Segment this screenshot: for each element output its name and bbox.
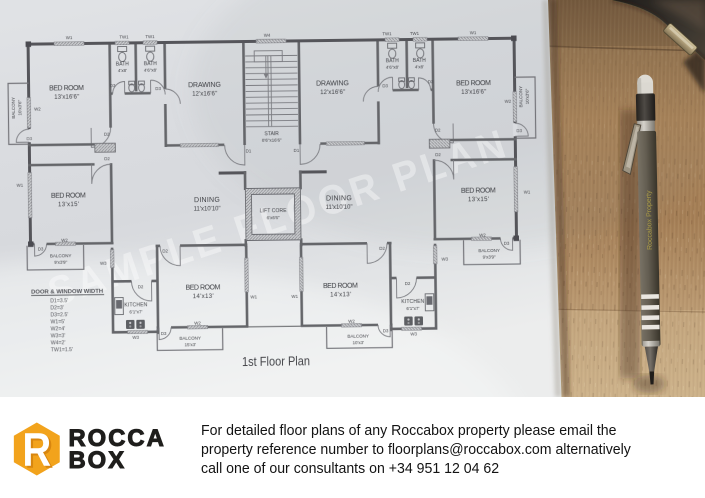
svg-text:D3: D3 <box>110 83 116 88</box>
svg-text:W2=4': W2=4' <box>51 326 66 332</box>
svg-text:D2=3': D2=3' <box>50 305 64 311</box>
svg-text:W2: W2 <box>479 233 486 238</box>
svg-text:BATH: BATH <box>144 61 157 67</box>
svg-text:6'1"x7': 6'1"x7' <box>129 309 142 314</box>
svg-text:W1: W1 <box>250 294 257 299</box>
svg-text:BED ROOM: BED ROOM <box>323 283 358 290</box>
svg-text:13'x16'6": 13'x16'6" <box>461 90 486 96</box>
svg-text:D3: D3 <box>26 136 32 141</box>
svg-text:W4=2': W4=2' <box>51 340 66 346</box>
svg-text:D3: D3 <box>155 86 161 91</box>
svg-text:W3: W3 <box>100 261 107 266</box>
svg-text:TW1: TW1 <box>410 31 420 36</box>
svg-text:W2: W2 <box>61 238 68 243</box>
svg-text:14'x13': 14'x13' <box>330 292 351 298</box>
svg-text:Roccabox Property: Roccabox Property <box>646 190 654 250</box>
svg-text:D2: D2 <box>405 281 411 286</box>
svg-text:D2: D2 <box>104 132 110 137</box>
svg-text:D3: D3 <box>428 79 434 84</box>
svg-text:D3: D3 <box>516 128 522 133</box>
svg-text:D3: D3 <box>382 83 388 88</box>
svg-text:D3: D3 <box>504 241 510 246</box>
svg-text:W1: W1 <box>524 190 531 195</box>
svg-text:13'x15': 13'x15' <box>58 202 79 208</box>
svg-text:9'x3'9": 9'x3'9" <box>54 260 68 265</box>
svg-text:STAIR: STAIR <box>264 131 279 137</box>
svg-text:DRAWING: DRAWING <box>316 80 349 87</box>
svg-text:D2: D2 <box>162 248 168 253</box>
svg-text:W3=3': W3=3' <box>51 333 66 339</box>
svg-text:BALCONY: BALCONY <box>11 97 16 119</box>
svg-text:DRAWING: DRAWING <box>188 82 221 89</box>
svg-text:D3: D3 <box>161 331 167 336</box>
svg-text:W3: W3 <box>441 257 448 262</box>
svg-text:4'6"x8': 4'6"x8' <box>386 65 399 70</box>
svg-text:BED ROOM: BED ROOM <box>186 284 221 291</box>
svg-text:DINING: DINING <box>326 195 352 202</box>
svg-text:W2: W2 <box>34 107 41 112</box>
svg-text:14'x13': 14'x13' <box>193 294 214 300</box>
svg-text:W1=5': W1=5' <box>50 319 65 325</box>
svg-text:LIFT CORE: LIFT CORE <box>260 208 288 214</box>
svg-text:BALCONY: BALCONY <box>518 86 523 108</box>
svg-text:W2: W2 <box>504 99 511 104</box>
svg-text:W1: W1 <box>291 294 298 299</box>
svg-text:D1: D1 <box>246 148 252 153</box>
svg-text:D2: D2 <box>104 156 110 161</box>
svg-text:W1: W1 <box>470 30 477 35</box>
svg-text:W3: W3 <box>410 331 417 336</box>
svg-text:BED ROOM: BED ROOM <box>51 192 86 199</box>
svg-text:W3: W3 <box>132 335 139 340</box>
svg-text:TW1: TW1 <box>145 34 155 39</box>
svg-text:12'x16'6": 12'x16'6" <box>320 90 345 96</box>
svg-text:8'6"x16'6": 8'6"x16'6" <box>262 137 282 142</box>
svg-text:6'1"x7': 6'1"x7' <box>406 306 419 311</box>
svg-text:TW1: TW1 <box>119 34 129 39</box>
svg-text:13'x15': 13'x15' <box>468 197 489 203</box>
svg-text:BATH: BATH <box>386 58 399 64</box>
svg-text:D1: D1 <box>294 148 300 153</box>
svg-text:BED ROOM: BED ROOM <box>456 80 491 87</box>
svg-text:TW1=1.5': TW1=1.5' <box>51 347 73 353</box>
svg-text:BALCONY: BALCONY <box>347 334 369 339</box>
svg-text:10'x3': 10'x3' <box>352 340 364 345</box>
svg-text:13'x16'6": 13'x16'6" <box>54 95 79 101</box>
svg-text:W4: W4 <box>264 33 271 38</box>
svg-text:11'x10'10": 11'x10'10" <box>326 205 353 211</box>
svg-text:D2: D2 <box>379 246 385 251</box>
svg-text:D1=3.5': D1=3.5' <box>50 298 68 304</box>
svg-text:D3=2.5': D3=2.5' <box>50 312 68 318</box>
svg-text:W1: W1 <box>16 183 23 188</box>
svg-text:BALCONY: BALCONY <box>50 253 72 258</box>
svg-text:W2: W2 <box>348 319 355 324</box>
svg-text:6'x6'6": 6'x6'6" <box>267 215 281 220</box>
svg-text:KITCHEN: KITCHEN <box>124 302 147 308</box>
svg-text:4'6"x8': 4'6"x8' <box>144 68 157 73</box>
svg-text:BALCONY: BALCONY <box>478 248 500 253</box>
svg-text:KITCHEN: KITCHEN <box>401 299 424 305</box>
svg-text:BALCONY: BALCONY <box>179 336 201 341</box>
svg-text:W2: W2 <box>194 321 201 326</box>
svg-text:1st Floor Plan: 1st Floor Plan <box>242 353 310 369</box>
svg-text:D3: D3 <box>383 328 389 333</box>
svg-text:R: R <box>22 425 51 477</box>
svg-text:10'x3'6": 10'x3'6" <box>17 100 22 116</box>
svg-text:11'x10'10": 11'x10'10" <box>194 206 221 212</box>
svg-text:D2: D2 <box>435 152 441 157</box>
svg-text:12'x16'6": 12'x16'6" <box>192 91 217 97</box>
svg-text:W1: W1 <box>66 35 73 40</box>
svg-text:BATH: BATH <box>116 61 129 67</box>
svg-text:4'x8': 4'x8' <box>415 64 424 69</box>
svg-text:D2: D2 <box>138 284 144 289</box>
svg-text:10'x3'6": 10'x3'6" <box>525 88 530 104</box>
svg-text:BED ROOM: BED ROOM <box>49 85 84 92</box>
svg-text:D3: D3 <box>38 246 44 251</box>
svg-text:TW1: TW1 <box>382 31 392 36</box>
svg-text:D2: D2 <box>435 128 441 133</box>
svg-text:DINING: DINING <box>194 197 220 204</box>
svg-text:4'x8': 4'x8' <box>118 68 127 73</box>
svg-text:BED ROOM: BED ROOM <box>461 187 496 194</box>
svg-text:BATH: BATH <box>413 58 426 64</box>
svg-text:15'x3': 15'x3' <box>184 342 196 347</box>
svg-text:9'x3'9": 9'x3'9" <box>483 254 497 259</box>
